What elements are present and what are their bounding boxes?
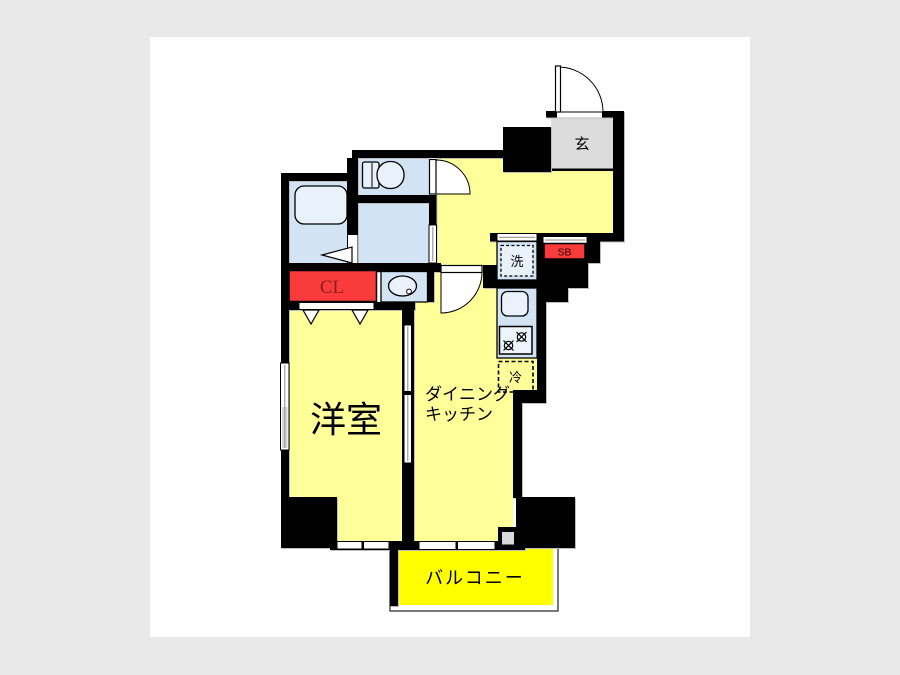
floor-plan: 玄 洗 SB 冷 CL 洋室 ダイニング キッチン バルコニー <box>0 0 900 675</box>
window-western-room-south <box>337 542 389 550</box>
kitchen-sink-icon <box>502 292 529 317</box>
bathtub-icon <box>295 186 347 224</box>
kitchen-counter-icon <box>497 288 537 358</box>
wall-balcony-left <box>390 545 398 606</box>
dk-door-leaf <box>441 266 482 273</box>
opening-laundry <box>497 234 537 242</box>
label-genkan: 玄 <box>574 136 589 153</box>
wall-pipe-space <box>503 127 551 172</box>
stove-icon <box>500 327 533 355</box>
wall-top-toilet-hall <box>352 150 503 158</box>
vanity-sink-icon <box>381 272 428 303</box>
genkan-step-edge <box>551 169 613 172</box>
label-dk-line1: ダイニング <box>425 385 510 404</box>
label-shoe-box: SB <box>557 247 571 259</box>
window-dk-south <box>419 542 495 550</box>
label-dk-line2: キッチン <box>425 405 493 424</box>
label-laundry: 洗 <box>510 254 523 269</box>
wall-bathroom-top <box>281 173 353 181</box>
washroom-floor <box>352 203 429 265</box>
wall-dk-right <box>513 400 522 498</box>
label-western-room: 洋室 <box>310 399 382 440</box>
label-refrigerator: 冷 <box>509 370 522 385</box>
wall-block-southwest <box>281 497 337 548</box>
sliding-door-washroom <box>429 225 437 263</box>
label-balcony: バルコニー <box>425 568 525 588</box>
wall-kitchen-right <box>537 288 546 400</box>
window-west-wall <box>281 363 290 450</box>
closet-opening <box>299 303 374 310</box>
label-closet: CL <box>320 277 344 298</box>
opening-shoebox <box>543 237 587 244</box>
wall-block-southeast <box>516 497 575 548</box>
wall-right-outer <box>613 111 624 238</box>
wall-chunk-e <box>535 263 588 288</box>
wall-toilet-bottom <box>347 195 436 203</box>
meter-box <box>502 532 514 545</box>
entry-door-leaf <box>556 66 561 112</box>
wall-washer-left <box>483 265 497 288</box>
toilet-icon <box>363 162 405 189</box>
toilet-door-leaf <box>430 160 437 195</box>
wall-vanity-right <box>428 272 435 302</box>
